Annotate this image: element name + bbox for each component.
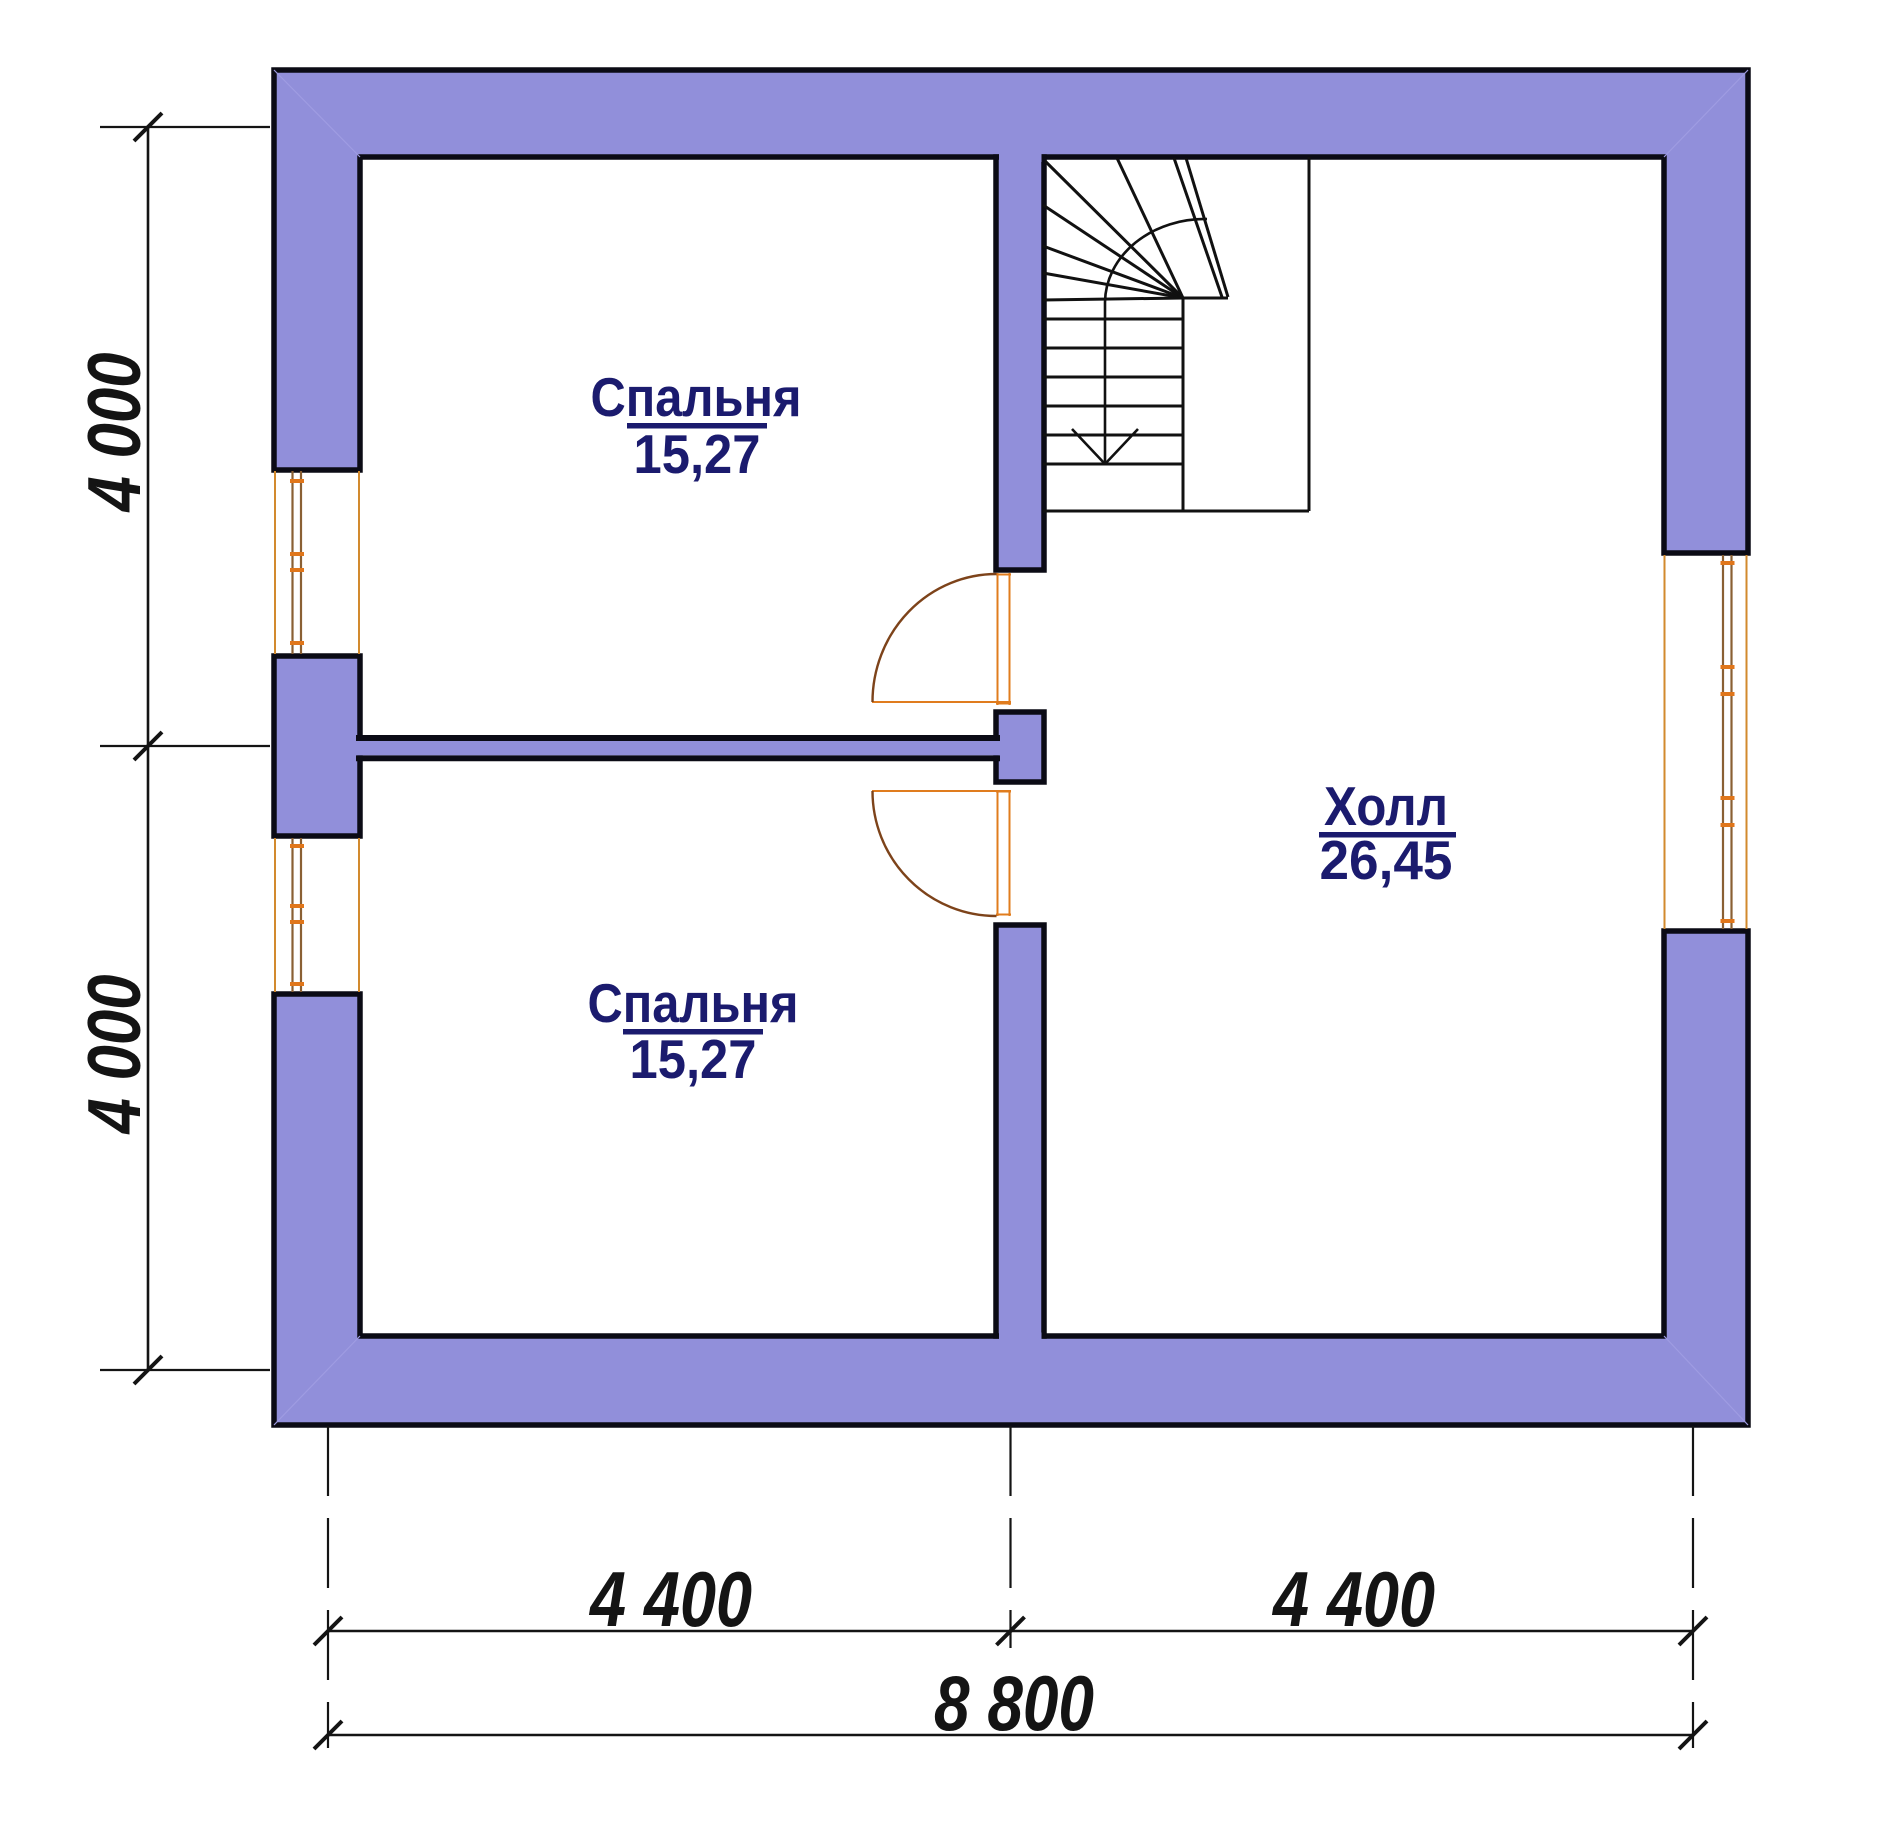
svg-text:15,27: 15,27 — [634, 423, 761, 485]
svg-text:4 400: 4 400 — [1271, 1555, 1435, 1643]
svg-text:Холл: Холл — [1324, 775, 1448, 837]
svg-text:15,27: 15,27 — [630, 1028, 757, 1090]
svg-text:8 800: 8 800 — [934, 1659, 1094, 1747]
svg-text:4 000: 4 000 — [72, 975, 156, 1136]
svg-text:4 400: 4 400 — [588, 1555, 752, 1643]
svg-text:Спальня: Спальня — [588, 972, 799, 1034]
svg-text:Спальня: Спальня — [591, 366, 802, 428]
svg-text:4 000: 4 000 — [72, 353, 156, 514]
svg-text:26,45: 26,45 — [1320, 829, 1453, 891]
